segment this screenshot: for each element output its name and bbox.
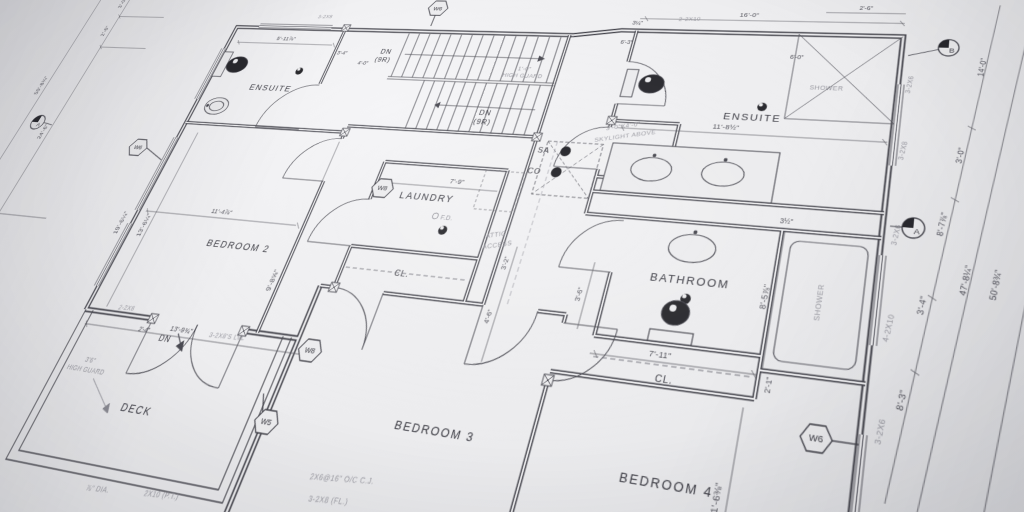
dim-ensuite-right-top: 16'-0" bbox=[739, 12, 760, 19]
blueprint-photo: DN (9R) DN (9R) 1'-0" HIGH GUARD bbox=[0, 0, 1024, 512]
bath-closet-label: CL. bbox=[653, 373, 673, 387]
note-t1: 3-2X8 bbox=[317, 14, 334, 20]
stair-dn-upper-risers: (9R) bbox=[373, 56, 392, 64]
dim-shower: 6'-0" bbox=[789, 54, 804, 61]
note-t2: 2-2X10 bbox=[678, 16, 701, 23]
ensuite-left-label: ENSUITE bbox=[247, 82, 293, 93]
stair-dn-lower-risers: (9R) bbox=[472, 118, 492, 127]
window-tag-bedroom4: W6 bbox=[808, 434, 824, 447]
floor-plan-drawing: DN (9R) DN (9R) 1'-0" HIGH GUARD bbox=[0, 0, 1024, 512]
blueprint-sheet: DN (9R) DN (9R) 1'-0" HIGH GUARD bbox=[0, 0, 1024, 512]
dim-laundry: 7'-9" bbox=[448, 178, 465, 187]
dim-ensuite-right-top3: 2'-6" bbox=[859, 5, 874, 12]
dim-wall-a: 3¼" bbox=[631, 20, 643, 27]
dim-ensuite-right-top2: 6'-3" bbox=[619, 39, 633, 46]
stair-guard-note-1: 1'-0" bbox=[517, 66, 532, 73]
dim-ensuite-left: 5'-11⅞" bbox=[275, 36, 297, 42]
co-alarm-label: CO bbox=[526, 167, 542, 177]
